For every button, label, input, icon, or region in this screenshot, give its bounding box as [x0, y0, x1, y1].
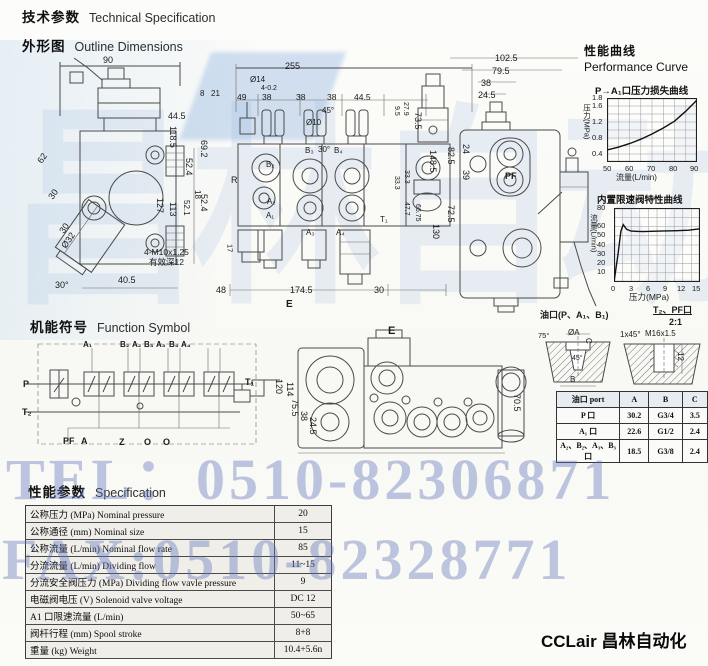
table-cell: 9 — [275, 574, 332, 591]
table-cell: 2.4 — [682, 424, 707, 440]
table-cell: 公称压力 (MPa) Nominal pressure — [26, 506, 275, 523]
table-cell: 85 — [275, 540, 332, 557]
table-cell: 10.4+5.6n — [275, 642, 332, 659]
table-cell: B — [649, 392, 682, 408]
table-cell: C — [682, 392, 707, 408]
table-row: 电磁阀电压 (V) Solenoid valve voltageDC 12 — [26, 591, 332, 608]
table-cell: 18.5 — [620, 440, 649, 463]
table-cell: 2.4 — [682, 440, 707, 463]
table-row: 公称流量 (L/min) Nominal flow rate85 — [26, 540, 332, 557]
specification-table: 公称压力 (MPa) Nominal pressure20公称通径 (mm) N… — [25, 505, 332, 659]
port-section-pab-drawing — [542, 326, 614, 388]
page-title-cn: 技术参数 — [22, 10, 80, 25]
page-title-en: Technical Specification — [89, 11, 215, 25]
table-cell: A₁ 口 — [557, 424, 620, 440]
function-symbol-schematic — [20, 332, 285, 450]
table-row: 分流安全阀压力 (MPa) Dividing flow vavle pressu… — [26, 574, 332, 591]
table-cell: P 口 — [557, 408, 620, 424]
table-cell: 30.2 — [620, 408, 649, 424]
table-cell: A1 口限速流量 (L/min) — [26, 608, 275, 625]
table-cell: 分流安全阀压力 (MPa) Dividing flow vavle pressu… — [26, 574, 275, 591]
pressure-loss-chart-title: P→A₁口压力损失曲线 — [595, 83, 688, 97]
speed-limit-chart — [614, 208, 700, 282]
left-view-drawing — [18, 56, 223, 306]
table-cell: 50~65 — [275, 608, 332, 625]
table-cell: G3/4 — [649, 408, 682, 424]
table-cell: 公称通径 (mm) Nominal size — [26, 523, 275, 540]
table-cell: 20 — [275, 506, 332, 523]
right-view-drawing — [442, 52, 592, 314]
table-row: A1 口限速流量 (L/min)50~65 — [26, 608, 332, 625]
e-view-drawing — [290, 322, 530, 462]
table-cell: 油口 port — [557, 392, 620, 408]
table-cell: 15 — [275, 523, 332, 540]
table-row: 公称通径 (mm) Nominal size15 — [26, 523, 332, 540]
table-cell: 电磁阀电压 (V) Solenoid valve voltage — [26, 591, 275, 608]
pressure-loss-chart — [607, 98, 697, 162]
spec-heading: 性能参数Specification — [28, 481, 166, 502]
table-cell: A₂、B₂、A₃、B₃ 口 — [557, 440, 620, 463]
table-cell: 重量 (kg) Weight — [26, 642, 275, 659]
table-cell: 3.5 — [682, 408, 707, 424]
table-cell: 分流流量 (L/min) Dividing flow — [26, 557, 275, 574]
outline-heading: 外形图Outline Dimensions — [22, 35, 183, 56]
table-cell: 阀杆行程 (mm) Spool stroke — [26, 625, 275, 642]
function-heading-cn: 机能符号 — [30, 320, 88, 335]
table-row: P 口30.2G3/43.5 — [557, 408, 708, 424]
port-thread-table: 油口 portABCP 口30.2G3/43.5A₁ 口22.6G1/22.4A… — [556, 391, 708, 463]
brand-logo-text: CCLair 昌林自动化 — [541, 627, 686, 652]
function-symbol-heading: 机能符号Function Symbol — [30, 316, 190, 337]
table-cell: 公称流量 (L/min) Nominal flow rate — [26, 540, 275, 557]
table-cell: 22.6 — [620, 424, 649, 440]
table-cell: 8+8 — [275, 625, 332, 642]
speed-limit-chart-title: 内置限速阀特性曲线 — [597, 192, 683, 206]
page-title: 技术参数Technical Specification — [22, 6, 215, 27]
table-cell: G1/2 — [649, 424, 682, 440]
table-cell: A — [620, 392, 649, 408]
table-row: A₂、B₂、A₃、B₃ 口18.5G3/82.4 — [557, 440, 708, 463]
datasheet-page: 昌林自动化 TEL：0510-82306871 FAX:0510-8232877… — [0, 0, 708, 666]
outline-heading-cn: 外形图 — [22, 39, 66, 54]
function-heading-en: Function Symbol — [97, 321, 190, 335]
spec-heading-cn: 性能参数 — [28, 485, 86, 500]
table-cell: DC 12 — [275, 591, 332, 608]
front-view-drawing — [228, 60, 478, 312]
table-cell: G3/8 — [649, 440, 682, 463]
table-cell: 11~15 — [275, 557, 332, 574]
table-row: 油口 portABC — [557, 392, 708, 408]
table-row: 重量 (kg) Weight10.4+5.6n — [26, 642, 332, 659]
port-section-t2pf-drawing — [620, 334, 708, 392]
table-row: 阀杆行程 (mm) Spool stroke8+8 — [26, 625, 332, 642]
table-row: 公称压力 (MPa) Nominal pressure20 — [26, 506, 332, 523]
table-row: 分流流量 (L/min) Dividing flow11~15 — [26, 557, 332, 574]
table-row: A₁ 口22.6G1/22.4 — [557, 424, 708, 440]
spec-heading-en: Specification — [95, 486, 166, 500]
performance-heading-en: Performance Curve — [584, 58, 688, 76]
outline-heading-en: Outline Dimensions — [75, 40, 183, 54]
